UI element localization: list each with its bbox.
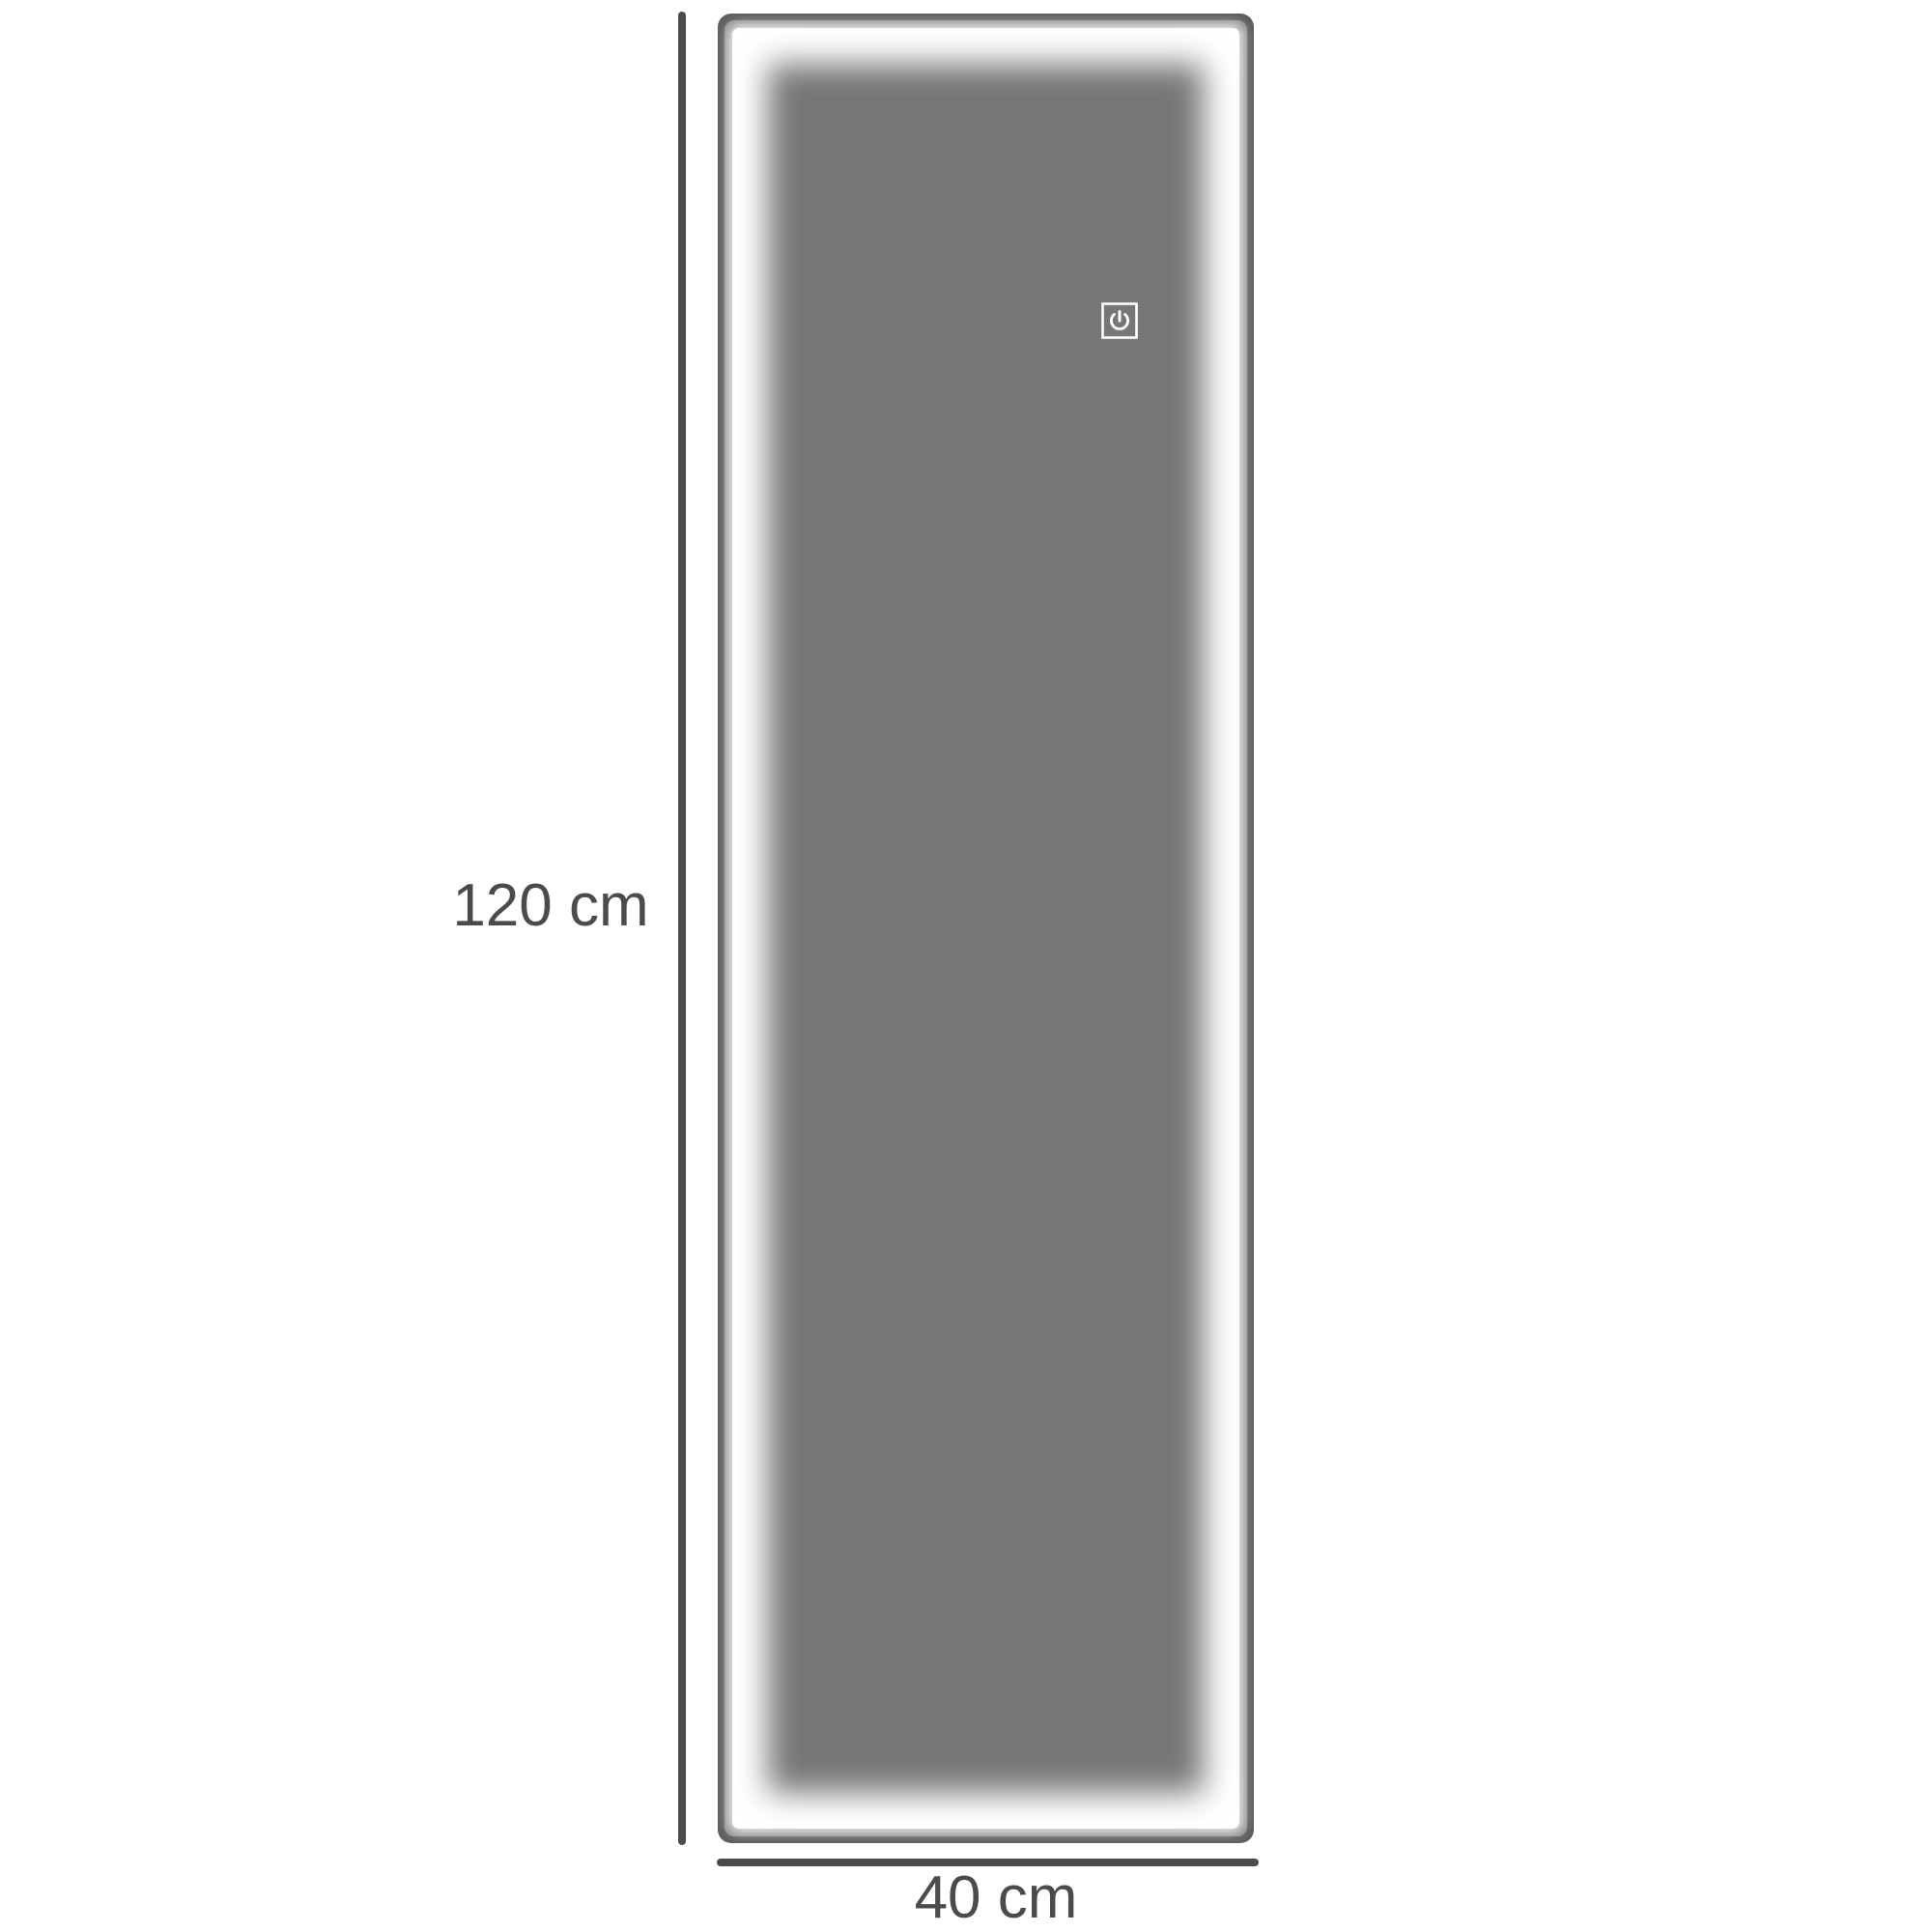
power-icon — [1101, 302, 1138, 339]
led-mirror — [718, 14, 1254, 1843]
power-touch-button — [1101, 302, 1138, 339]
dimension-diagram: 120 cm 40 cm — [0, 0, 1932, 1932]
width-dimension-label: 40 cm — [803, 1868, 1189, 1928]
height-dimension-label: 120 cm — [357, 876, 744, 936]
mirror-glass — [768, 64, 1204, 1793]
